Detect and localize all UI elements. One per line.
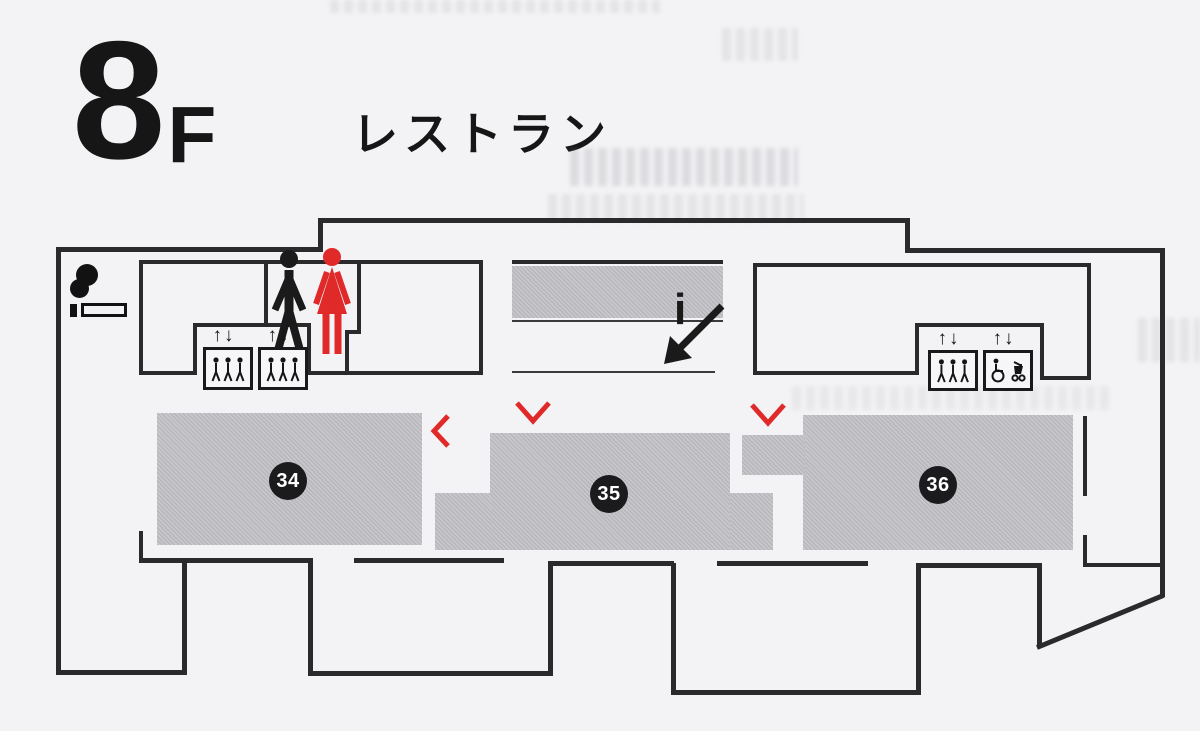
wall-segment <box>139 531 143 561</box>
wall-segment <box>345 371 483 375</box>
elevator-updown-arrows: ↑↓ <box>927 328 971 350</box>
escalator-line <box>512 371 715 373</box>
floor-number: 8 <box>72 35 165 166</box>
wall-segment <box>139 371 197 375</box>
wall-segment <box>193 323 197 375</box>
wall-segment-diagonal <box>1036 593 1165 650</box>
wall-segment <box>1037 563 1042 648</box>
wall-segment <box>753 263 1091 267</box>
bleedthrough-artifact <box>1138 318 1200 362</box>
wall-segment <box>479 260 483 375</box>
room-badge-36: 36 <box>919 466 957 504</box>
smoking-area-icon <box>66 262 130 322</box>
direction-chevron-down-icon <box>749 401 787 427</box>
wall-segment <box>357 260 361 334</box>
wall-segment <box>753 371 919 375</box>
room-badge-34: 34 <box>269 462 307 500</box>
room-badge-35: 35 <box>590 475 628 513</box>
wall-segment <box>915 323 919 375</box>
elevator-icon <box>928 350 978 391</box>
wall-segment <box>1040 376 1091 380</box>
wall-segment <box>905 218 910 252</box>
wall-segment <box>717 561 868 566</box>
bleedthrough-artifact <box>722 28 798 61</box>
wall-segment <box>139 260 143 375</box>
wall-segment <box>916 563 921 695</box>
wall-segment <box>56 247 61 675</box>
direction-chevron-down-icon <box>514 399 552 425</box>
wall-segment <box>56 670 187 675</box>
wall-segment <box>1087 263 1091 380</box>
wall-segment <box>318 218 323 252</box>
wall-segment <box>915 323 1044 327</box>
wall-segment <box>512 260 723 264</box>
wall-segment <box>308 671 553 676</box>
escalator-down-arrow-icon <box>658 296 730 370</box>
wall-segment <box>354 558 504 563</box>
room-area-35-wing-right <box>730 493 773 550</box>
wall-segment <box>905 248 1164 253</box>
wall-segment <box>1160 248 1165 597</box>
wall-segment <box>753 263 757 375</box>
bleedthrough-artifact <box>330 0 660 13</box>
wall-segment <box>548 561 674 566</box>
wall-segment <box>308 558 313 676</box>
wall-segment <box>1040 323 1044 380</box>
wall-segment <box>318 218 910 223</box>
womens-restroom-icon <box>311 248 353 360</box>
wall-segment <box>671 690 921 695</box>
wall-segment <box>1083 563 1165 567</box>
elevator-icon <box>203 347 253 390</box>
wall-segment <box>548 561 553 676</box>
floor-map-page: 8 F レストラン i <box>0 0 1200 731</box>
room-area-36-arm <box>742 435 805 475</box>
bleedthrough-artifact <box>570 148 798 186</box>
wall-segment <box>671 563 676 695</box>
wall-segment <box>307 371 349 375</box>
accessible-elevator-icon <box>983 350 1033 391</box>
floor-indicator: 8 F <box>72 38 216 166</box>
elevator-updown-arrows: ↑↓ <box>257 325 301 347</box>
elevator-updown-arrows: ↑↓ <box>982 328 1026 350</box>
floor-letter: F <box>167 105 216 166</box>
wall-segment <box>1083 416 1087 496</box>
wall-segment <box>916 563 1040 568</box>
room-area-35-wing-left <box>435 493 492 550</box>
elevator-icon <box>258 347 308 390</box>
wall-segment <box>139 558 313 563</box>
wall-segment <box>182 558 187 675</box>
elevator-updown-arrows: ↑↓ <box>202 325 246 347</box>
wall-segment <box>264 260 268 325</box>
direction-chevron-left-icon <box>430 413 452 449</box>
